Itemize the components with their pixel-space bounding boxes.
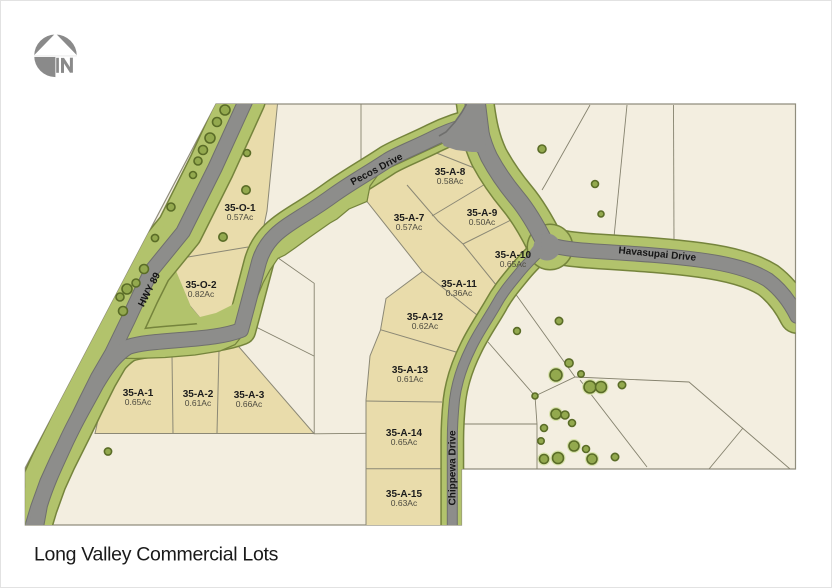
svg-text:0.66Ac: 0.66Ac bbox=[236, 399, 263, 409]
svg-text:0.61Ac: 0.61Ac bbox=[185, 398, 212, 408]
svg-text:Long Valley Commercial Lots: Long Valley Commercial Lots bbox=[34, 544, 279, 566]
svg-text:0.61Ac: 0.61Ac bbox=[397, 374, 424, 384]
svg-text:0.36Ac: 0.36Ac bbox=[446, 288, 473, 298]
svg-text:0.50Ac: 0.50Ac bbox=[469, 217, 496, 227]
svg-text:0.63Ac: 0.63Ac bbox=[391, 498, 418, 508]
svg-text:0.65Ac: 0.65Ac bbox=[500, 259, 527, 269]
svg-text:0.57Ac: 0.57Ac bbox=[396, 222, 423, 232]
svg-text:0.62Ac: 0.62Ac bbox=[412, 321, 439, 331]
svg-text:0.65Ac: 0.65Ac bbox=[391, 437, 418, 447]
svg-text:0.58Ac: 0.58Ac bbox=[437, 176, 464, 186]
svg-text:Chippewa Drive: Chippewa Drive bbox=[448, 430, 459, 505]
svg-text:0.82Ac: 0.82Ac bbox=[188, 289, 215, 299]
svg-text:0.57Ac: 0.57Ac bbox=[227, 212, 254, 222]
svg-text:0.65Ac: 0.65Ac bbox=[125, 397, 152, 407]
